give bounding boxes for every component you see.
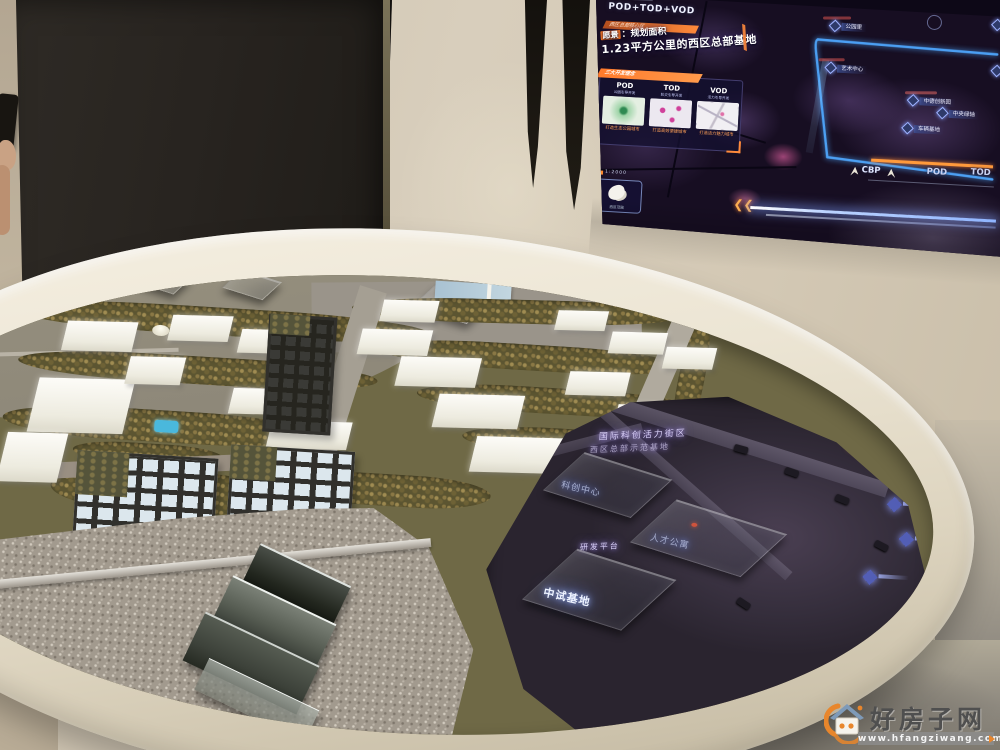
green-roof <box>75 450 130 497</box>
screen-reflection-diamond <box>862 569 878 585</box>
map-label: 公园里 <box>830 21 866 32</box>
screen-reflection-bar <box>878 574 908 580</box>
watermark-url: www.hfangziwang.com <box>858 734 994 744</box>
label-streak <box>823 16 851 19</box>
watermark-site-name: 好房子网 <box>870 700 986 736</box>
pod-caption: 打造生态公园城市 <box>602 125 642 133</box>
model-building <box>357 329 434 357</box>
model-building <box>554 310 609 331</box>
green-roof <box>269 314 310 336</box>
model-car <box>834 494 850 506</box>
model-building <box>608 332 669 355</box>
screen-reflection-bar <box>903 502 933 508</box>
model-building <box>432 394 526 430</box>
vod-map-thumbnail <box>696 101 739 131</box>
development-concept-panel: 三大开发理念 POD 公园引导开发 打造生态公园城市 TOD 轨交引导开发 打造… <box>596 72 744 152</box>
tod-map-thumbnail <box>649 98 692 128</box>
model-building <box>61 321 139 352</box>
vod-caption: 打造活力魅力城市 <box>696 130 736 138</box>
tod-caption: 打造高效便捷城市 <box>649 127 689 135</box>
model-building <box>124 356 186 385</box>
model-car <box>874 540 890 553</box>
model-building <box>167 315 234 342</box>
model-pool <box>154 420 179 433</box>
tab-pod: POD <box>926 167 947 178</box>
watermark-url-bar: www.hfangziwang.com <box>858 732 994 745</box>
vision-tag: 愿景 <box>600 30 621 40</box>
tab-tod: TOD <box>970 167 991 178</box>
tab-cbp: CBP <box>861 165 880 176</box>
model-car <box>736 597 752 611</box>
model-building <box>379 300 440 323</box>
model-dark-tower <box>262 314 337 436</box>
label-streak <box>819 58 845 61</box>
green-roof <box>229 444 277 481</box>
model-building <box>394 356 482 388</box>
panel-column-vod: VOD 活力引导开发 打造活力魅力城市 <box>695 86 740 138</box>
architectural-model-board: 国际科创活力街区 西区总部示范基地 科创中心 人才公寓 研发平台 中试基地 <box>0 245 947 750</box>
screen-reflection-diamond <box>899 532 915 548</box>
model-building <box>27 377 136 434</box>
model-building <box>565 371 631 396</box>
pod-map-thumbnail <box>602 96 645 126</box>
exhibition-room-photo: POD+TOD+VOD 西区总部核心区 愿景：规划面积 1.23平方公里的西区总… <box>0 0 1000 750</box>
watermark: 好房子网 www.hfangziwang.com <box>824 698 996 748</box>
orange-reflection <box>847 444 901 469</box>
model-building <box>662 347 718 370</box>
screen-reflection-diamond <box>887 497 903 513</box>
model-building <box>0 432 68 483</box>
visitor-wrist <box>0 165 10 235</box>
watermark-triangle-icon <box>989 735 995 743</box>
panel-corner-bracket <box>726 141 741 154</box>
panel-column-pod: POD 公园引导开发 打造生态公园城市 <box>601 81 646 133</box>
panel-column-tod: TOD 轨交引导开发 打造高效便捷城市 <box>648 83 693 135</box>
label-streak <box>905 91 937 94</box>
